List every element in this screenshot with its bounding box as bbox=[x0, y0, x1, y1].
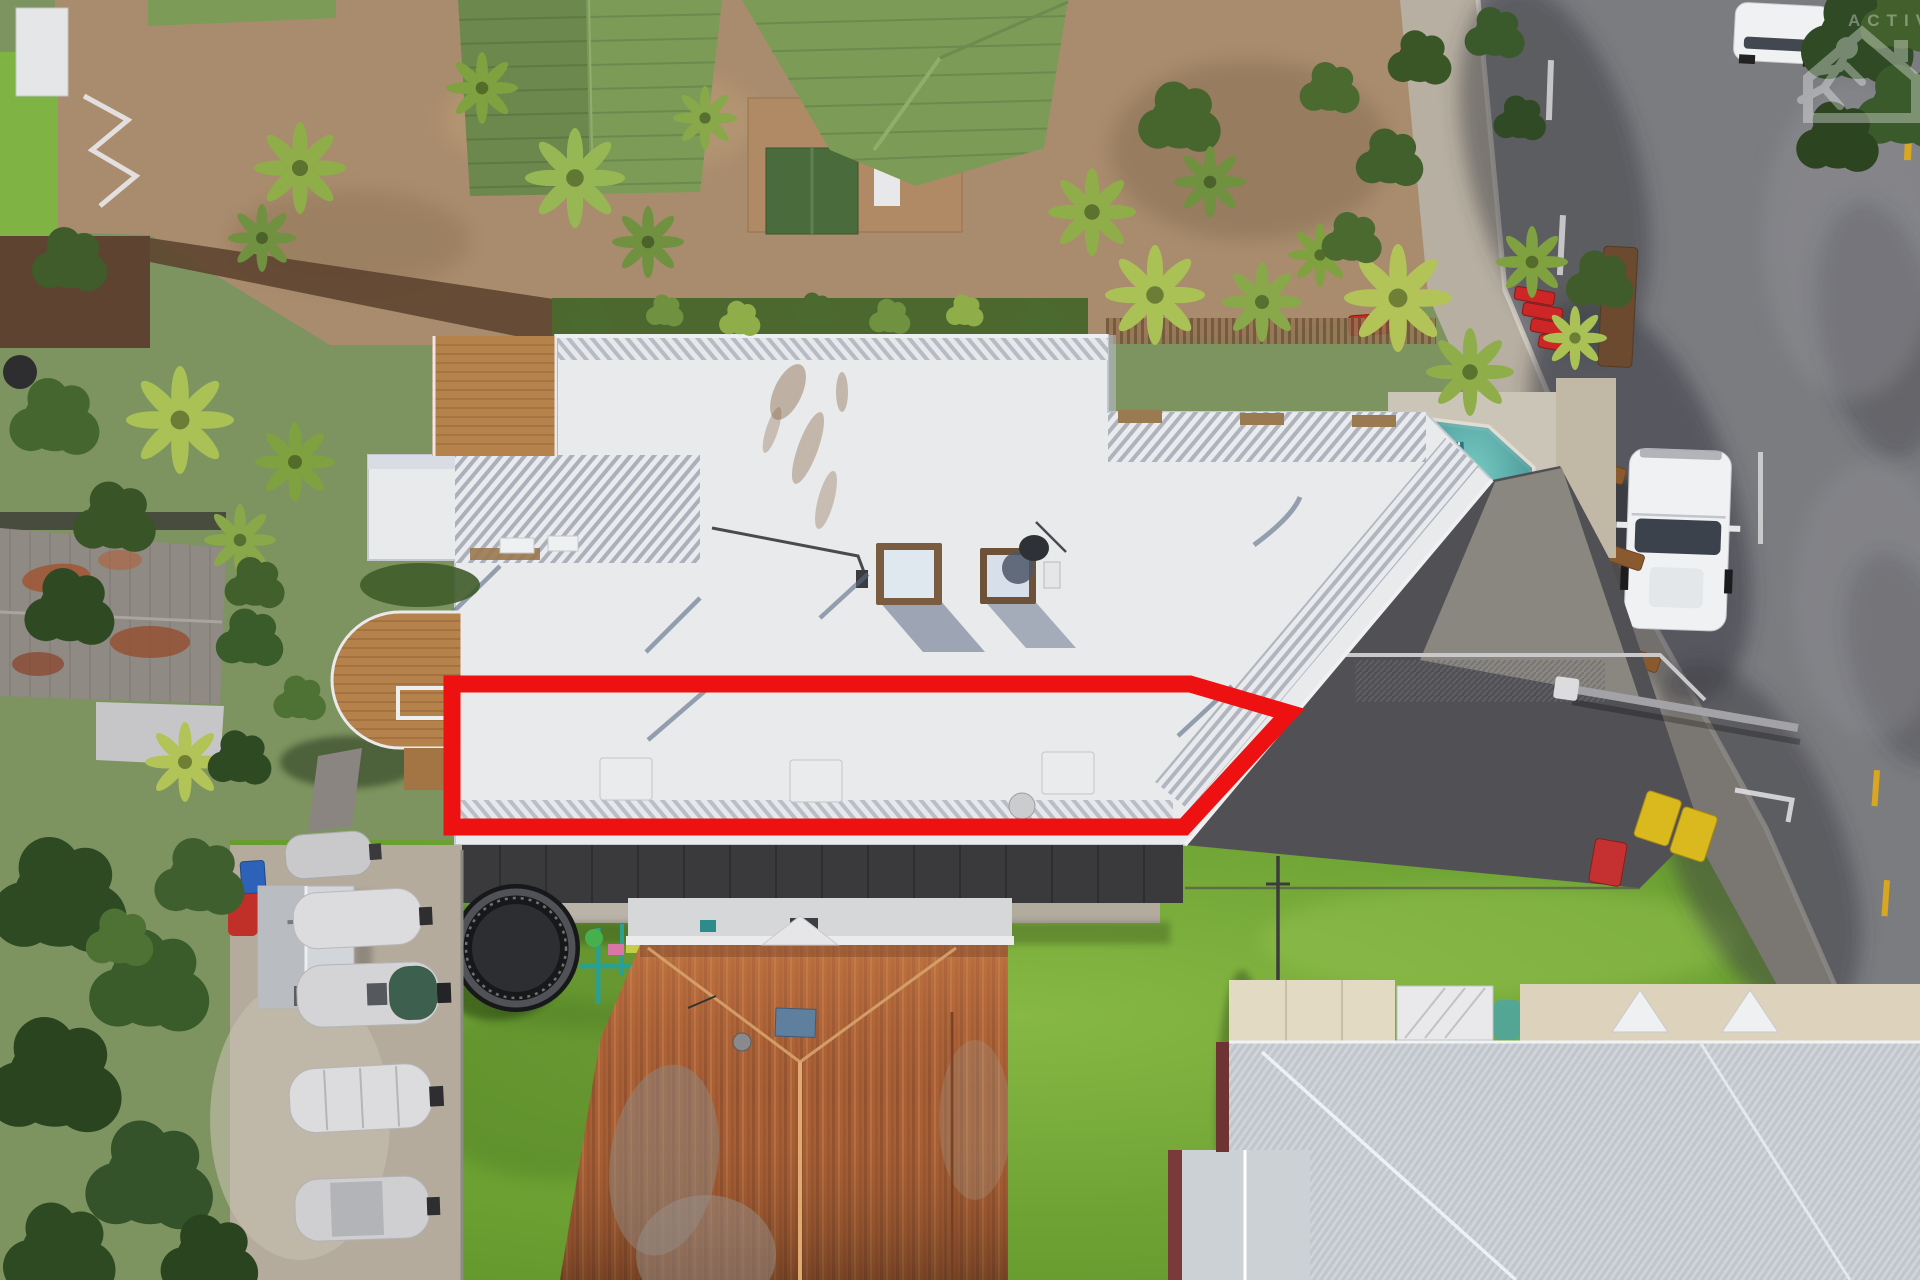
van-roof-hump bbox=[1648, 567, 1703, 609]
solar-skylight-panel bbox=[775, 1008, 816, 1037]
boat-3-console bbox=[367, 983, 388, 1006]
palm-tree bbox=[1048, 168, 1136, 256]
boat-1-motor bbox=[369, 843, 382, 860]
cream-flat-roof bbox=[1229, 980, 1395, 1042]
boat-4-motor bbox=[429, 1086, 444, 1107]
car-wheel-1 bbox=[1739, 54, 1755, 64]
modern-metal-roof-house bbox=[1168, 970, 1920, 1280]
palm-tree bbox=[446, 52, 518, 124]
boat-3-motor bbox=[437, 983, 452, 1003]
pole-end-cap bbox=[1553, 676, 1580, 701]
roof-vent bbox=[733, 1033, 751, 1051]
cream-roof-right bbox=[1520, 984, 1920, 1042]
play-pink-seat bbox=[608, 944, 624, 955]
pergola-post-2 bbox=[1240, 413, 1284, 425]
boat-2-motor bbox=[419, 907, 433, 926]
aerial-photo-canvas: ACTIVE bbox=[0, 0, 1920, 1280]
watermark-text: ACTIVE bbox=[1848, 11, 1920, 30]
parapet-louvre-band bbox=[558, 336, 1108, 360]
boat-3 bbox=[296, 961, 452, 1028]
van-mirror-right bbox=[1728, 525, 1740, 531]
palm-tree bbox=[228, 204, 296, 272]
pergola-post-3 bbox=[1352, 415, 1396, 427]
garden-bed bbox=[360, 563, 480, 607]
timber-boardwalk bbox=[432, 336, 558, 456]
boat-yard bbox=[210, 829, 462, 1280]
palm-tree bbox=[1222, 262, 1302, 342]
boat-5-motor bbox=[427, 1197, 441, 1215]
small-spa bbox=[1494, 1000, 1520, 1040]
roof-step-shadow bbox=[1108, 335, 1116, 413]
maroon-wall-trim-2 bbox=[1168, 1150, 1182, 1280]
palm-tree bbox=[126, 366, 234, 474]
round-planter bbox=[3, 355, 37, 389]
palm-tree bbox=[525, 128, 625, 228]
van-windshield bbox=[1634, 518, 1721, 555]
play-green-ball bbox=[585, 929, 603, 947]
watermark-chimney bbox=[1894, 40, 1908, 62]
aerial-photo: ACTIVE bbox=[0, 0, 1920, 1280]
palm-tree bbox=[1174, 146, 1246, 218]
van-mirror-left bbox=[1616, 522, 1628, 528]
boat-5 bbox=[294, 1175, 441, 1242]
skylight-1-glass bbox=[884, 550, 934, 598]
trampoline-mat bbox=[472, 904, 560, 992]
palm-tree bbox=[1496, 226, 1568, 298]
maroon-wall-trim bbox=[1216, 1042, 1229, 1152]
palm-tree bbox=[255, 422, 335, 502]
roof-unit-box-2 bbox=[548, 536, 578, 551]
small-roof-dish bbox=[1009, 793, 1035, 819]
boat-3-green-hull bbox=[388, 965, 438, 1021]
white-structure bbox=[16, 8, 68, 96]
palm-tree bbox=[673, 86, 737, 150]
satellite-dish bbox=[1019, 535, 1049, 561]
sunlit-lawn-patch bbox=[1260, 885, 1740, 995]
retaining-wall bbox=[455, 845, 1183, 903]
palm-tree bbox=[1543, 306, 1607, 370]
van-wheel-left bbox=[1620, 566, 1629, 590]
palm-tree bbox=[1105, 245, 1205, 345]
boat-5-tarp bbox=[330, 1181, 384, 1237]
pergola-post-1 bbox=[1118, 410, 1162, 423]
boat-4 bbox=[288, 1062, 445, 1134]
palm-tree bbox=[612, 206, 684, 278]
red-bin bbox=[1588, 838, 1627, 887]
watermark-runner-head bbox=[1836, 37, 1858, 59]
palm-tree bbox=[254, 122, 346, 214]
deck-object-teal bbox=[700, 920, 716, 932]
palm-tree bbox=[1426, 328, 1514, 416]
roof-ac-small bbox=[1044, 562, 1060, 588]
roof-unit-box-1 bbox=[500, 538, 534, 553]
van-wheel-right bbox=[1724, 569, 1733, 593]
